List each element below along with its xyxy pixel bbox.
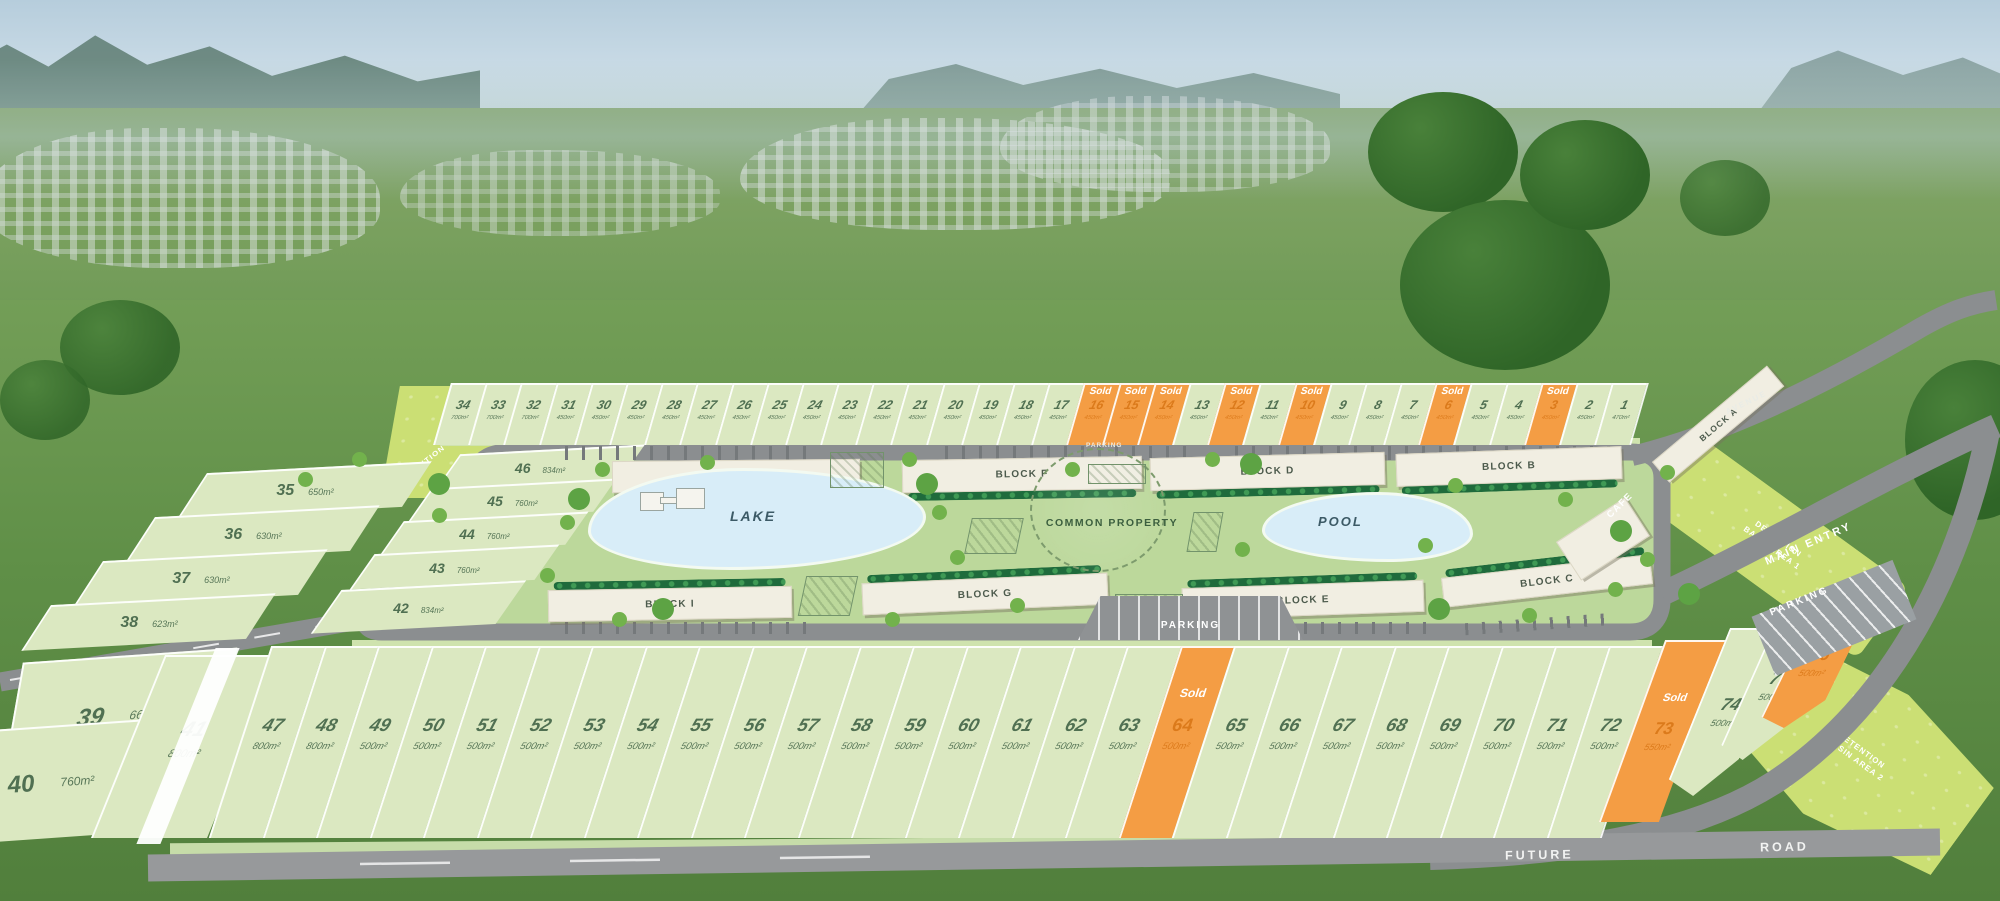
lake-deck: [676, 488, 705, 509]
lot-size: 450m²: [837, 415, 856, 421]
lot-number: 25: [771, 399, 788, 412]
lot-size: 760m²: [515, 499, 538, 508]
central-parking-bay: [1078, 596, 1303, 640]
sold-badge: Sold: [1223, 386, 1259, 397]
lot-number: 55: [688, 716, 714, 734]
lot-number: 70: [1491, 716, 1517, 734]
lot-number: 16: [1088, 399, 1105, 412]
lot-number: 61: [1009, 716, 1035, 734]
lot-size: 450m²: [556, 415, 575, 421]
lot-number: 63: [1116, 716, 1142, 734]
lot-number: 29: [630, 399, 647, 412]
lot-cell-content: 38623m²: [120, 615, 177, 631]
lot-size: 450m²: [1084, 415, 1103, 421]
lot-size: 623m²: [152, 619, 178, 629]
lot-number: 10: [1299, 399, 1316, 412]
lot-size: 450m²: [697, 415, 716, 421]
future-road-label-future: FUTURE: [1505, 847, 1574, 862]
lot-number: 47: [260, 716, 286, 734]
lot-size: 630m²: [204, 575, 230, 585]
lot-cell-content: 45760m²: [488, 494, 538, 508]
lot-number: 52: [528, 716, 554, 734]
lot-size: 700m²: [450, 415, 469, 421]
lot-size: 450m²: [1048, 415, 1067, 421]
lot-cell-content: 43760m²: [430, 561, 480, 575]
lot-number: 24: [806, 399, 823, 412]
lot-number: 49: [367, 716, 393, 734]
sold-badge: Sold: [1082, 386, 1118, 397]
lot-size: 500m²: [1000, 741, 1031, 752]
lot-number: 6: [1443, 399, 1454, 412]
planting-bed: [798, 576, 859, 616]
lot-number: 51: [474, 716, 500, 734]
lot-number: 21: [912, 399, 929, 412]
pool-label: POOL: [1318, 514, 1363, 529]
lot-number: 19: [982, 399, 999, 412]
lot-number: 66: [1277, 716, 1303, 734]
lot-number: 45: [488, 494, 504, 508]
lot-size: 500m²: [1161, 741, 1192, 752]
sold-badge: Sold: [1117, 386, 1153, 397]
lot-number: 28: [665, 399, 682, 412]
lot-size: 450m²: [908, 415, 927, 421]
lot-number: 38: [120, 615, 138, 631]
lot-size: 450m²: [1295, 415, 1314, 421]
lot-size: 500m²: [626, 741, 657, 752]
lot-number: 67: [1330, 716, 1356, 734]
lot-size: 834m²: [543, 465, 566, 474]
bottom-lot-strip: 47800m²48800m²49500m²50500m²51500m²52500…: [209, 646, 1664, 838]
sold-badge: Sold: [1165, 686, 1221, 700]
lot-size: 700m²: [521, 415, 540, 421]
lot-size: 500m²: [1589, 741, 1620, 752]
lake-label: LAKE: [730, 508, 776, 524]
lot-number: 12: [1228, 399, 1245, 412]
lot-number: 43: [430, 561, 446, 575]
lot-number: 9: [1338, 399, 1349, 412]
lot-size: 500m²: [1054, 741, 1085, 752]
lot-number: 23: [841, 399, 858, 412]
lot-size: 760m²: [60, 773, 95, 789]
parking-bays: [565, 622, 810, 634]
sold-badge: Sold: [1293, 386, 1329, 397]
lot-number: 58: [849, 716, 875, 734]
lot-size: 450m²: [1576, 415, 1595, 421]
lot-number: 36: [224, 527, 242, 543]
lot-number: 30: [595, 399, 612, 412]
lot-size: 800m²: [305, 741, 336, 752]
lot-number: 71: [1544, 716, 1570, 734]
lot-size: 450m²: [661, 415, 680, 421]
lot-size: 650m²: [308, 487, 334, 497]
block-i-building: BLOCK I: [548, 586, 793, 622]
planting-bed: [1088, 464, 1146, 484]
lot-number: 26: [736, 399, 753, 412]
lot-size: 450m²: [1471, 415, 1490, 421]
lot-number: 72: [1598, 716, 1624, 734]
lot-number: 7: [1408, 399, 1419, 412]
lot-size: 450m²: [978, 415, 997, 421]
lot-size: 500m²: [947, 741, 978, 752]
lot-size: 500m²: [465, 741, 496, 752]
lot-number: 65: [1223, 716, 1249, 734]
lot-size: 500m²: [733, 741, 764, 752]
lot-number: 62: [1063, 716, 1089, 734]
block-d-label: BLOCK D: [1240, 465, 1294, 477]
north-parking-label: PARKING: [1086, 442, 1123, 449]
lot-size: 450m²: [1400, 415, 1419, 421]
lot-size: 450m²: [626, 415, 645, 421]
lot-cell-content: 36630m²: [224, 527, 281, 543]
block-g-label: BLOCK G: [958, 587, 1013, 600]
lot-size: 630m²: [256, 531, 282, 541]
lot-size: 550m²: [1643, 742, 1672, 752]
block-b-building: BLOCK B: [1395, 446, 1622, 487]
lot-number: 13: [1193, 399, 1210, 412]
top-lot-strip: 34700m²33700m²32700m²31450m²30450m²29450…: [433, 383, 1649, 445]
future-road-label-road: ROAD: [1760, 839, 1809, 854]
lot-number: 54: [635, 716, 661, 734]
trees-decoration: [0, 0, 22, 22]
sold-badge: Sold: [1540, 386, 1576, 397]
lot-size: 450m²: [767, 415, 786, 421]
lot-size: 450m²: [802, 415, 821, 421]
lot-size: 500m²: [1268, 741, 1299, 752]
lot-number: 57: [795, 716, 821, 734]
lot-number: 64: [1170, 716, 1196, 734]
lot-number: 27: [701, 399, 718, 412]
estate-masterplan-aerial: DETENTION BASIN AREA 3 DETENTION BASIN A…: [0, 0, 2000, 901]
lot-cell-content: 44760m²: [460, 527, 510, 541]
lot-number: 48: [314, 716, 340, 734]
lot-number: 46: [516, 460, 532, 474]
lot-size: 500m²: [1107, 741, 1138, 752]
sold-badge: Sold: [1153, 386, 1189, 397]
sold-badge: Sold: [1434, 386, 1470, 397]
lot-cell-content: 37630m²: [172, 571, 229, 587]
lot-number: 15: [1123, 399, 1140, 412]
lot-size: 500m²: [840, 741, 871, 752]
lot-number: 53: [581, 716, 607, 734]
lot-size: 500m²: [1796, 668, 1826, 678]
lot-size: 450m²: [1119, 415, 1138, 421]
lot-size: 500m²: [412, 741, 443, 752]
lot-number: 33: [490, 399, 507, 412]
lot-size: 450m²: [943, 415, 962, 421]
lot-number: 8: [1373, 399, 1384, 412]
lot-size: 760m²: [457, 566, 480, 575]
lot-size: 450m²: [1365, 415, 1384, 421]
lot-size: 500m²: [1321, 741, 1352, 752]
lot-size: 500m²: [358, 741, 389, 752]
lot-number: 40: [7, 772, 35, 798]
lot-number: 20: [947, 399, 964, 412]
lot-size: 450m²: [732, 415, 751, 421]
lot-number: 59: [902, 716, 928, 734]
lot-number: 4: [1513, 399, 1524, 412]
lot-size: 470m²: [1611, 415, 1630, 421]
lot-number: 37: [172, 571, 190, 587]
block-i-label: BLOCK I: [645, 598, 695, 610]
lot-size: 500m²: [519, 741, 550, 752]
lot-number: 2: [1584, 399, 1595, 412]
planting-bed: [830, 452, 884, 488]
lot-size: 500m²: [1482, 741, 1513, 752]
central-parking-label: PARKING: [1098, 620, 1283, 631]
lot-number: 3: [1549, 399, 1560, 412]
lot-size: 450m²: [1189, 415, 1208, 421]
common-property-label: COMMON PROPERTY: [1012, 517, 1212, 529]
lot-size: 450m²: [1224, 415, 1243, 421]
lot-number: 32: [525, 399, 542, 412]
lot-size: 500m²: [786, 741, 817, 752]
lot-size: 450m²: [1435, 415, 1454, 421]
lot-size: 450m²: [1154, 415, 1173, 421]
lot-size: 800m²: [251, 741, 282, 752]
lot-number: 22: [877, 399, 894, 412]
lot-number: 17: [1053, 399, 1070, 412]
lot-size: 500m²: [572, 741, 603, 752]
lot-size: 450m²: [872, 415, 891, 421]
lot-size: 500m²: [1214, 741, 1245, 752]
lot-number: 5: [1478, 399, 1489, 412]
lot-size: 500m²: [679, 741, 710, 752]
lot-size: 700m²: [485, 415, 504, 421]
lot-number: 69: [1437, 716, 1463, 734]
lot-size: 760m²: [487, 532, 510, 541]
lot-size: 450m²: [1541, 415, 1560, 421]
lot-number: 31: [560, 399, 577, 412]
lot-number: 34: [454, 399, 471, 412]
lot-number: 60: [956, 716, 982, 734]
lot-size: 500m²: [1375, 741, 1406, 752]
parking-bays: [565, 446, 820, 460]
lot-number: 35: [276, 483, 294, 499]
lot-size: 450m²: [1013, 415, 1032, 421]
block-c-label: BLOCK C: [1520, 572, 1575, 589]
lot-cell-content: 42834m²: [394, 601, 444, 615]
sold-badge: Sold: [1644, 692, 1706, 704]
lot-cell-content: 35650m²: [276, 483, 333, 499]
lot-number: 44: [460, 527, 476, 541]
lot-number: 11: [1264, 399, 1281, 412]
lot-number: 73: [1651, 720, 1676, 737]
lot-size: 500m²: [1428, 741, 1459, 752]
lot-number: 18: [1017, 399, 1034, 412]
lot-number: 14: [1158, 399, 1175, 412]
lot-size: 450m²: [1260, 415, 1279, 421]
lot-size: 450m²: [1506, 415, 1525, 421]
lot-number: 42: [394, 601, 410, 615]
lot-size: 500m²: [1535, 741, 1566, 752]
lot-number: 68: [1384, 716, 1410, 734]
block-b-label: BLOCK B: [1482, 460, 1536, 473]
lot-size: 450m²: [591, 415, 610, 421]
lot-size: 500m²: [893, 741, 924, 752]
block-d-building: BLOCK D: [1150, 452, 1386, 491]
lot-size: 450m²: [1330, 415, 1349, 421]
lot-cell-content: 46834m²: [516, 460, 566, 474]
lot-number: 1: [1619, 399, 1630, 412]
lot-number: 50: [421, 716, 447, 734]
lot-number: 56: [742, 716, 768, 734]
lot-size: 834m²: [421, 606, 444, 615]
